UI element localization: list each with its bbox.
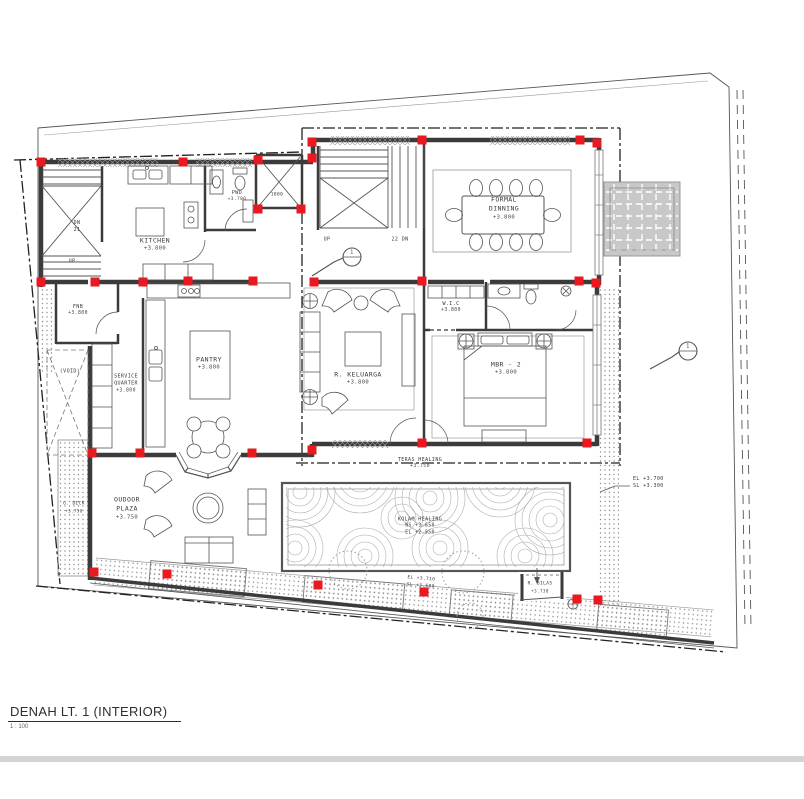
level-annotation-deck: EL +3.710 SL +3.600 — [407, 575, 436, 590]
kitchen-fixtures — [128, 166, 213, 280]
room-label-keluarga: R. KELUARGA+3.800 — [334, 370, 381, 387]
plaza-furniture — [144, 471, 266, 563]
room-label-outdoor-plaza: OUDOOR PLAZA +3.750 — [114, 496, 140, 523]
room-label-kitchen: KITCHEN+3.800 — [140, 236, 170, 253]
shaft-dimension: 1800 — [271, 193, 283, 200]
label-gdeck: G. DECK+3.750 — [63, 502, 85, 515]
section-markers — [312, 248, 697, 369]
room-label-service-quarter: SERVICE QUARTER +3.800 — [114, 373, 138, 394]
service-cabinets — [92, 344, 112, 448]
void-area — [47, 350, 88, 455]
stair-up-left-label: UP — [69, 258, 76, 265]
room-label-formal-dinning: FORMAL DINNING +3.800 — [489, 196, 519, 223]
planter-trellis — [604, 182, 680, 256]
sheet-scale: 1 : 100 — [8, 724, 181, 730]
room-label-fnb: FNB+3.800 — [68, 304, 88, 318]
bottom-deck — [93, 556, 714, 641]
room-label-pantry: PANTRY+3.800 — [196, 355, 222, 372]
label-kolam-healing: KOLAM HEALING WS +3.650 EL +2.950 — [398, 516, 442, 537]
room-label-wic: W.I.C+3.800 — [441, 301, 461, 315]
pantry-fixtures — [146, 283, 320, 458]
title-block: DENAH LT. 1 (INTERIOR) 1 : 100 — [8, 703, 181, 730]
stair-up-main-label: UP — [324, 236, 331, 243]
room-label-mbr2: MBR - 2+3.800 — [491, 360, 521, 377]
shaft — [258, 157, 300, 207]
stair-main — [320, 146, 424, 228]
room-label-pwd: PWD+3.780 — [228, 190, 247, 204]
floorplan-drawing — [0, 0, 804, 799]
section-marker-1-label: 1 — [350, 249, 353, 256]
room-label-void: (VOID) — [60, 368, 80, 375]
fnb-door-arc — [96, 312, 118, 334]
label-teras-healing: TERAS HEALING+3.750 — [398, 457, 442, 471]
family-room-furniture — [304, 288, 416, 444]
floorplan-sheet: KITCHEN+3.800 PWD+3.780 1800 DN21 UP UP … — [0, 0, 804, 799]
mbr2-furniture — [424, 333, 584, 444]
sheet-title: DENAH LT. 1 (INTERIOR) — [8, 704, 181, 722]
bottom-divider-band — [0, 756, 804, 762]
stair-dn-main-label: 22 DN — [391, 236, 408, 243]
section-marker-2-label: 1 — [686, 343, 689, 350]
room-label-bilas: R. BILAS+3.730 — [528, 582, 553, 595]
bay-window — [176, 452, 241, 478]
stair-dn-label: DN21 — [74, 220, 81, 235]
level-annotation-right: EL +3.700 SL +3.300 — [633, 476, 664, 491]
